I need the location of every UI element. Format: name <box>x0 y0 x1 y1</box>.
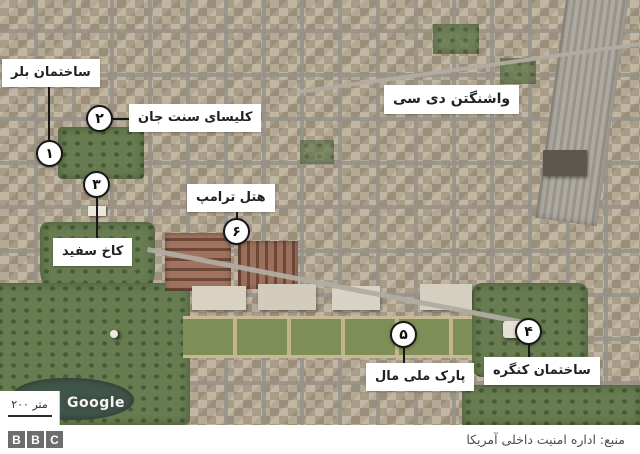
label-trump-hotel: هتل ترامپ <box>187 184 275 212</box>
bbc-logo-block-1: B <box>8 431 25 448</box>
label-white-house: کاخ سفید <box>53 238 132 266</box>
label-st-johns-church: کلیسای سنت جان <box>129 104 261 132</box>
map-scale: ۲۰۰ متر <box>0 391 60 425</box>
map-washington-monument <box>110 330 118 338</box>
map-green-patch-1 <box>433 24 479 54</box>
leader-line-st-johns <box>113 118 130 120</box>
map-green-patch-3 <box>300 140 334 164</box>
map-building-federal-triangle-2 <box>238 241 298 289</box>
marker-pin-2-st-johns-church: ۲ <box>86 105 113 132</box>
google-watermark: Google <box>67 395 125 411</box>
label-national-mall: پارک ملی مال <box>366 363 474 391</box>
leader-line-national-mall <box>403 348 405 364</box>
map-scale-label: ۲۰۰ متر <box>11 399 48 411</box>
label-washington-dc: واشنگتن دی سی <box>384 85 519 114</box>
leader-line-white-house <box>96 198 98 238</box>
marker-pin-3-white-house: ۳ <box>83 171 110 198</box>
marker-pin-1-blair-house: ۱ <box>36 140 63 167</box>
bbc-logo-block-2: B <box>27 431 44 448</box>
bbc-logo: B B C <box>8 431 63 448</box>
leader-line-blair-house <box>48 86 50 140</box>
source-attribution: منبع: اداره امنیت داخلی آمریکا <box>466 425 625 454</box>
bbc-logo-block-3: C <box>46 431 63 448</box>
marker-pin-6-trump-hotel: ۶ <box>223 218 250 245</box>
map-building-union-station <box>543 150 587 176</box>
news-map-graphic: Google ۲۰۰ متر ساختمان بلر کلیسای سنت جا… <box>0 0 640 454</box>
satellite-map: Google ۲۰۰ متر ساختمان بلر کلیسای سنت جا… <box>0 0 640 425</box>
map-green-national-mall-strip <box>183 316 515 358</box>
map-green-southeast-park <box>462 385 640 425</box>
marker-pin-4-congress: ۴ <box>515 318 542 345</box>
map-scale-bar <box>8 415 52 417</box>
map-building-museum-2 <box>258 284 316 310</box>
footer-bar: B B C منبع: اداره امنیت داخلی آمریکا <box>0 425 640 454</box>
marker-pin-5-national-mall: ۵ <box>390 321 417 348</box>
map-building-museum-1 <box>192 286 246 310</box>
label-congress-building: ساختمان کنگره <box>484 357 600 385</box>
label-blair-house: ساختمان بلر <box>2 59 100 87</box>
map-rail-yard <box>535 0 629 226</box>
